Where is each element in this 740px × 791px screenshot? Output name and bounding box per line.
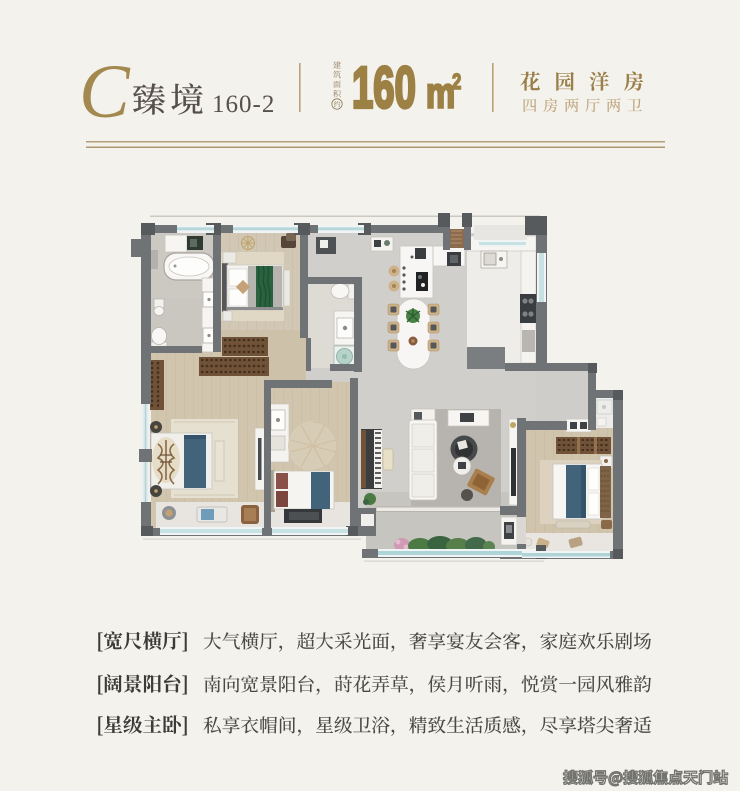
svg-text:C: C [79, 50, 131, 134]
svg-text:m: m [426, 69, 455, 117]
svg-text:160: 160 [352, 57, 416, 121]
svg-text:160-2: 160-2 [212, 91, 275, 118]
svg-text:2: 2 [452, 70, 461, 95]
